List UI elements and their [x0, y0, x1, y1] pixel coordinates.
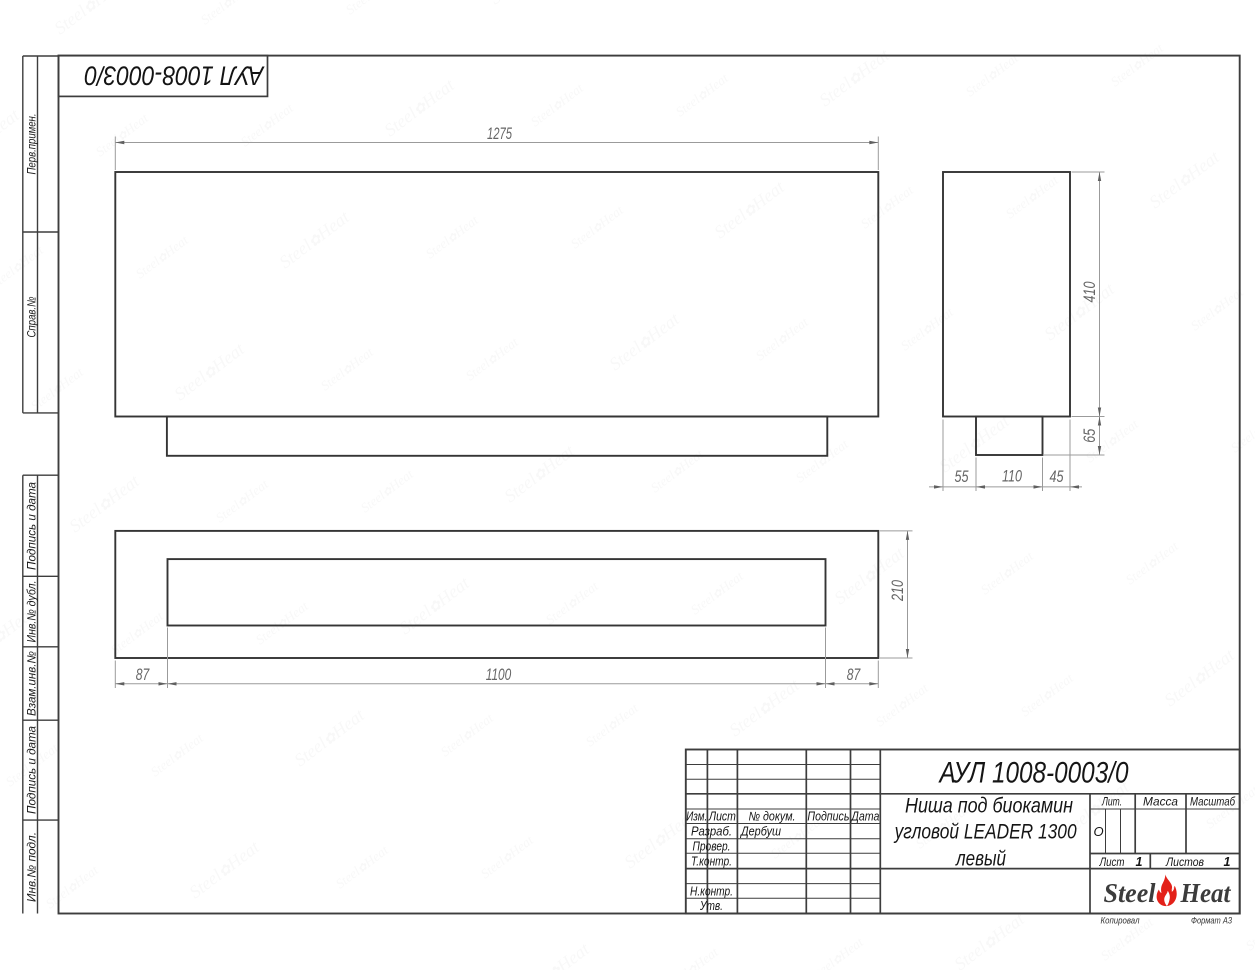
svg-text:Лит.: Лит. — [1101, 797, 1122, 809]
svg-text:АУЛ 1008-0003/0: АУЛ 1008-0003/0 — [938, 756, 1129, 789]
svg-text:Взам.инв.№: Взам.инв.№ — [24, 651, 38, 716]
svg-text:1: 1 — [1136, 855, 1143, 869]
svg-text:угловой LEADER 1300: угловой LEADER 1300 — [893, 821, 1077, 844]
svg-text:210: 210 — [889, 579, 907, 601]
svg-text:Масса: Масса — [1143, 797, 1178, 809]
svg-text:1100: 1100 — [486, 666, 512, 684]
svg-text:87: 87 — [136, 666, 150, 684]
svg-text:Копировал: Копировал — [1101, 915, 1141, 926]
svg-text:Лист: Лист — [708, 810, 736, 824]
svg-text:110: 110 — [1002, 467, 1023, 485]
svg-text:Изм.: Изм. — [686, 810, 707, 824]
svg-text:Утв.: Утв. — [699, 899, 723, 913]
svg-text:АУЛ 1008-0003/0: АУЛ 1008-0003/0 — [85, 61, 266, 91]
svg-text:87: 87 — [847, 666, 861, 684]
svg-text:410: 410 — [1081, 281, 1099, 303]
svg-text:О: О — [1093, 824, 1103, 839]
svg-text:Справ.№: Справ.№ — [24, 297, 38, 338]
svg-text:Масштаб: Масштаб — [1190, 797, 1235, 809]
svg-text:Провер.: Провер. — [693, 839, 731, 853]
svg-text:Подпись: Подпись — [807, 810, 849, 824]
svg-text:левый: левый — [955, 848, 1006, 871]
svg-text:Формат А3: Формат А3 — [1191, 915, 1233, 926]
svg-text:Дербуш: Дербуш — [739, 825, 781, 839]
svg-text:№ докум.: № докум. — [749, 810, 796, 824]
svg-text:Ниша под биокамин: Ниша под биокамин — [905, 795, 1073, 818]
svg-text:45: 45 — [1050, 468, 1065, 486]
svg-text:55: 55 — [955, 468, 970, 486]
svg-text:Инв.№ подл.: Инв.№ подл. — [24, 832, 38, 902]
svg-text:Разраб.: Разраб. — [691, 825, 732, 839]
svg-text:1: 1 — [1224, 855, 1231, 869]
svg-text:1275: 1275 — [487, 125, 513, 143]
svg-text:Подпись и дата: Подпись и дата — [24, 726, 38, 814]
svg-text:Лист: Лист — [1099, 855, 1125, 869]
svg-text:Heat: Heat — [1180, 878, 1232, 908]
svg-text:Дата: Дата — [850, 810, 880, 824]
svg-text:Н.контр.: Н.контр. — [690, 884, 733, 898]
svg-text:Листов: Листов — [1165, 855, 1204, 869]
svg-text:Т.контр.: Т.контр. — [691, 854, 732, 868]
svg-text:Steel: Steel — [1104, 878, 1156, 908]
svg-text:Инв.№ дубл.: Инв.№ дубл. — [24, 581, 38, 643]
svg-text:65: 65 — [1081, 428, 1099, 443]
svg-text:Перв.примен.: Перв.примен. — [24, 114, 38, 175]
svg-text:Подпись и дата: Подпись и дата — [24, 482, 38, 570]
